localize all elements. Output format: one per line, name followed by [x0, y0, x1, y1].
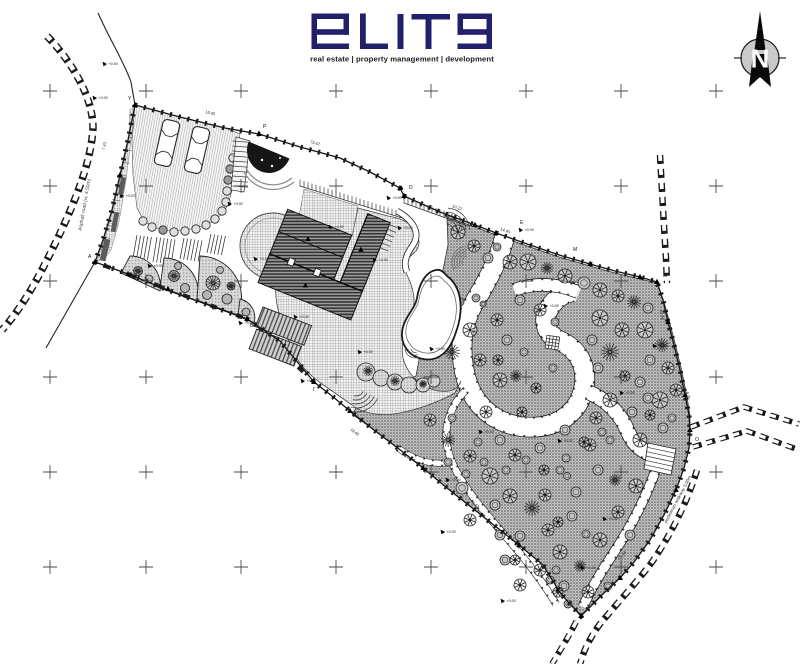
svg-text:+0.00: +0.00: [260, 257, 269, 261]
svg-text:+0.00: +0.00: [564, 439, 573, 443]
svg-text:+0.00: +0.00: [154, 264, 163, 268]
svg-text:+0.00: +0.00: [234, 202, 243, 206]
svg-text:+0.00: +0.00: [550, 304, 559, 308]
svg-text:+0.00: +0.00: [447, 530, 456, 534]
svg-text:+0.00: +0.00: [436, 347, 445, 351]
svg-text:+0.00: +0.00: [485, 430, 494, 434]
svg-text:+0.00: +0.00: [626, 391, 635, 395]
svg-text:+0.00: +0.00: [109, 62, 118, 66]
svg-text:+0.00: +0.00: [335, 225, 344, 229]
svg-text:+0.00: +0.00: [659, 344, 668, 348]
svg-text:+0.00: +0.00: [404, 226, 413, 230]
svg-text:D: D: [409, 185, 413, 191]
svg-text:+0.00: +0.00: [379, 258, 388, 262]
svg-text:+0.00: +0.00: [587, 566, 596, 570]
svg-text:N: N: [751, 44, 770, 74]
svg-text:M: M: [573, 247, 577, 253]
svg-text:+0.00: +0.00: [300, 315, 309, 319]
svg-text:+0.00: +0.00: [507, 599, 516, 603]
svg-text:real estate | property managem: real estate | property management | deve…: [310, 55, 494, 64]
svg-text:+0.00: +0.00: [609, 517, 618, 521]
svg-text:+0.00: +0.00: [525, 228, 534, 232]
svg-text:+0.00: +0.00: [307, 379, 316, 383]
svg-text:+0.00: +0.00: [452, 478, 461, 482]
svg-text:O: O: [695, 437, 699, 443]
svg-text:+0.00: +0.00: [364, 350, 373, 354]
svg-text:+0.00: +0.00: [99, 96, 108, 100]
svg-text:+0.00: +0.00: [393, 196, 402, 200]
svg-text:+0.00: +0.00: [126, 194, 135, 198]
svg-text:Γ: Γ: [313, 387, 316, 393]
svg-text:+0.00: +0.00: [245, 321, 254, 325]
